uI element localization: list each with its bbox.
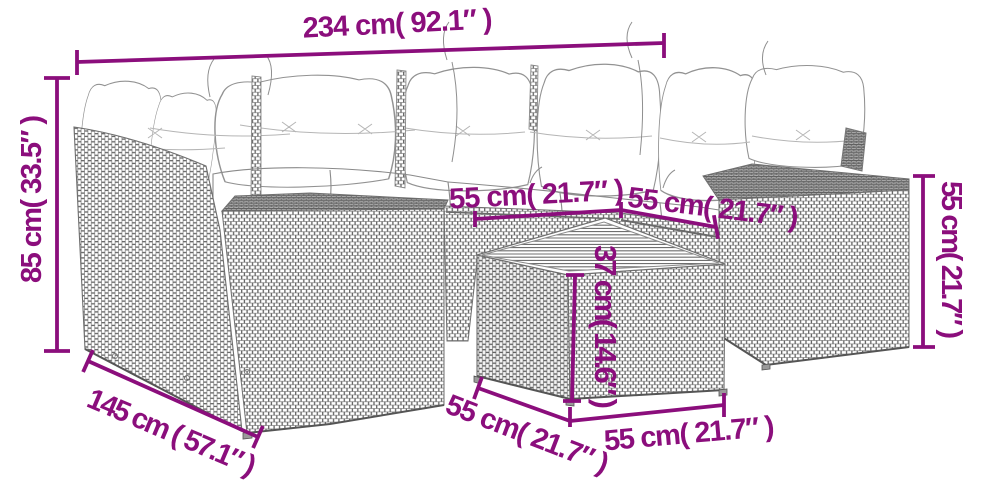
svg-text:37 cm( 14.6″ ): 37 cm( 14.6″ ) — [588, 245, 623, 409]
svg-text:85 cm( 33.5″ ): 85 cm( 33.5″ ) — [16, 115, 48, 283]
svg-text:55 cm( 21.7″ ): 55 cm( 21.7″ ) — [935, 181, 967, 339]
